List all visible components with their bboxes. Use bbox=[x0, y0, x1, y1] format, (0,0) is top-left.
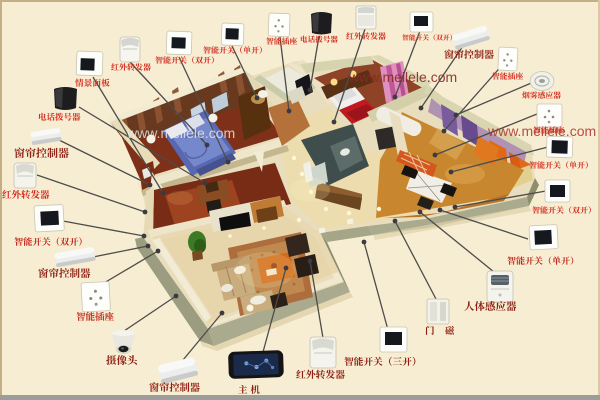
svg-text:www.meilele.com: www.meilele.com bbox=[348, 69, 457, 85]
svg-text:www.meilele.com: www.meilele.com bbox=[126, 125, 235, 141]
